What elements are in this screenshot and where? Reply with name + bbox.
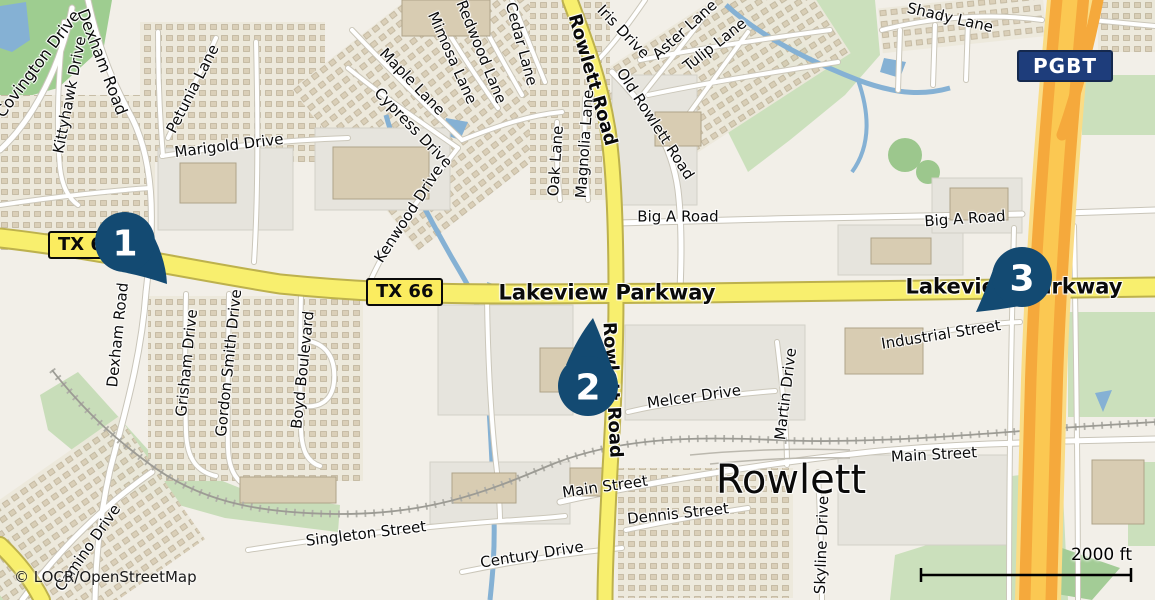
- scale-bar-label: 2000 ft: [918, 545, 1132, 565]
- map-graphics: [0, 0, 1155, 600]
- map-attribution: © LOCR/OpenStreetMap: [14, 568, 197, 586]
- route-badge-tx66-center: TX 66: [366, 278, 443, 306]
- route-badge-pgbt: PGBT: [1017, 50, 1113, 82]
- scale-bar-line: [918, 567, 1134, 583]
- scale-bar: 2000 ft: [918, 545, 1134, 587]
- route-badge-tx66-west: TX 66: [48, 231, 125, 259]
- map-canvas[interactable]: Covington DriveDexham RoadKittyhawk Driv…: [0, 0, 1155, 600]
